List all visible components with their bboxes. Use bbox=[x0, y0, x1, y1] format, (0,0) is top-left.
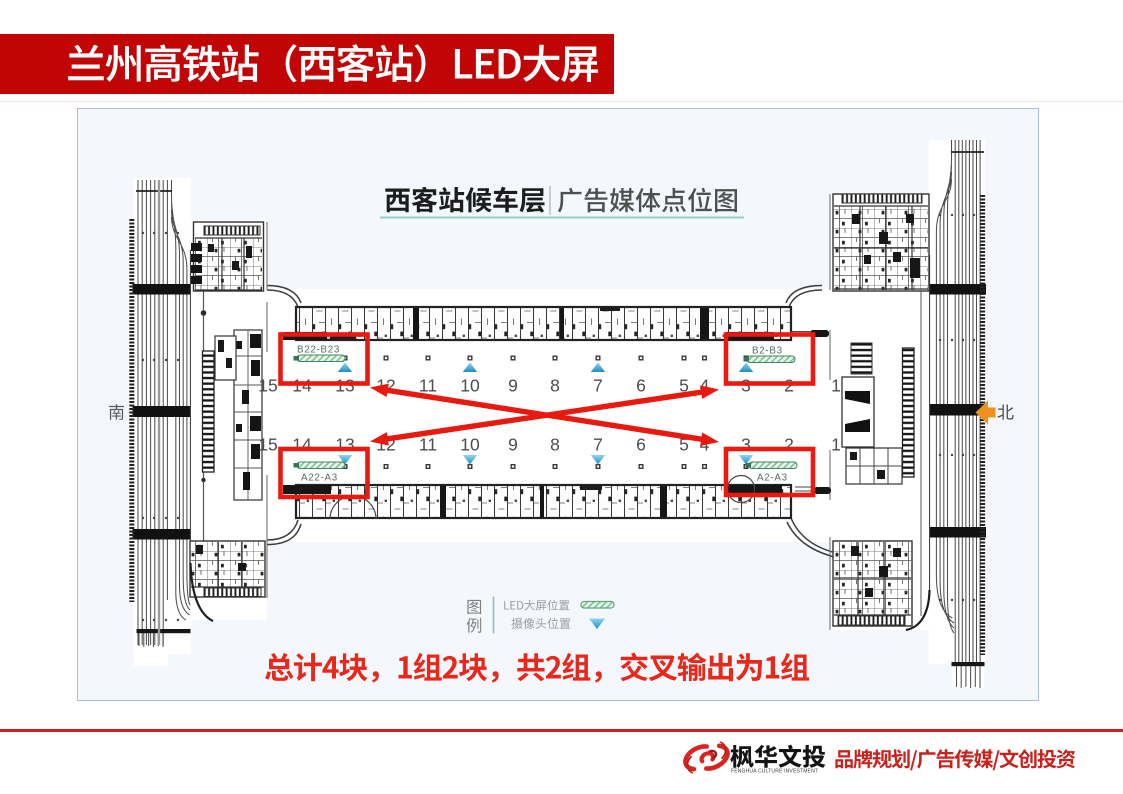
svg-text:10: 10 bbox=[460, 435, 480, 455]
svg-text:A22-A3: A22-A3 bbox=[301, 473, 338, 484]
svg-text:15: 15 bbox=[258, 435, 277, 455]
svg-text:6: 6 bbox=[636, 435, 646, 455]
svg-text:3: 3 bbox=[741, 435, 751, 455]
svg-text:1: 1 bbox=[831, 376, 841, 396]
svg-text:11: 11 bbox=[419, 376, 437, 396]
svg-text:9: 9 bbox=[508, 376, 518, 396]
svg-text:14: 14 bbox=[292, 435, 312, 455]
svg-text:9: 9 bbox=[508, 435, 518, 455]
svg-text:7: 7 bbox=[593, 376, 603, 396]
svg-text:7: 7 bbox=[593, 435, 603, 455]
svg-text:13: 13 bbox=[335, 435, 354, 455]
svg-text:6: 6 bbox=[636, 376, 646, 396]
svg-text:15: 15 bbox=[258, 376, 277, 396]
svg-text:8: 8 bbox=[550, 376, 560, 396]
svg-text:8: 8 bbox=[550, 435, 560, 455]
svg-text:10: 10 bbox=[460, 376, 480, 396]
svg-text:2: 2 bbox=[784, 435, 794, 455]
svg-text:1: 1 bbox=[831, 435, 841, 455]
svg-text:A2-A3: A2-A3 bbox=[757, 473, 788, 484]
svg-text:B2-B3: B2-B3 bbox=[752, 346, 783, 357]
svg-text:11: 11 bbox=[419, 435, 437, 455]
svg-text:FENGHUA CULTURE INVESTMENT: FENGHUA CULTURE INVESTMENT bbox=[731, 769, 818, 775]
svg-text:B22-B23: B22-B23 bbox=[297, 345, 340, 356]
